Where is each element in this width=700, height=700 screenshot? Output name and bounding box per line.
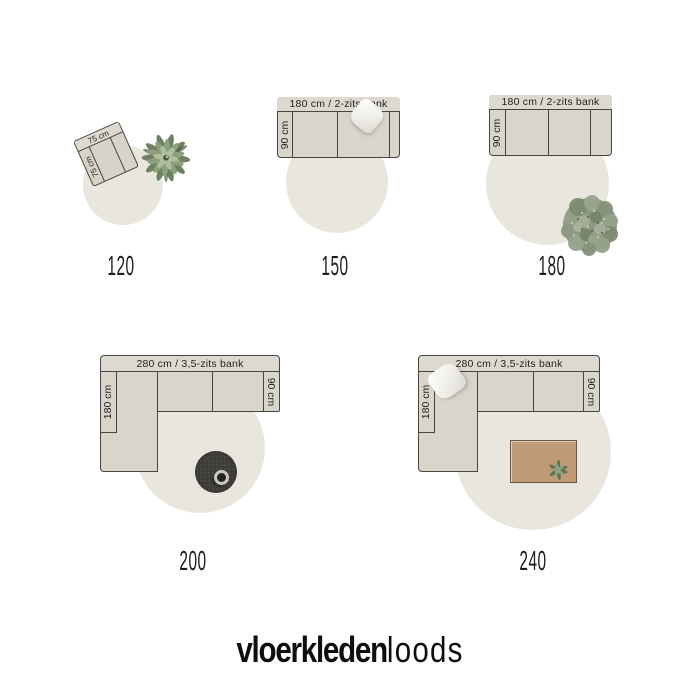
rug-size-label-240: 240 bbox=[519, 545, 546, 577]
rug-size-guide: 75 cm 75 cm bbox=[0, 0, 700, 700]
sofa-cushion-line bbox=[533, 372, 534, 412]
sofa-armrest-line bbox=[583, 372, 584, 412]
brand-logo-bold: vloerkleden bbox=[236, 629, 387, 670]
chaise-length-label: 180 cm bbox=[420, 385, 432, 419]
sofa-seats bbox=[478, 372, 600, 412]
sofa-depth-label: 90 cm bbox=[585, 378, 597, 407]
table-plant-icon bbox=[546, 458, 570, 482]
diagram-rug-240: 280 cm / 3,5-zits bank 180 cm 90 cm bbox=[0, 0, 700, 700]
chaise-label-tick bbox=[418, 432, 435, 433]
brand-logo-light: loods bbox=[387, 629, 464, 670]
brand-logo: vloerkledenloods bbox=[236, 629, 463, 671]
